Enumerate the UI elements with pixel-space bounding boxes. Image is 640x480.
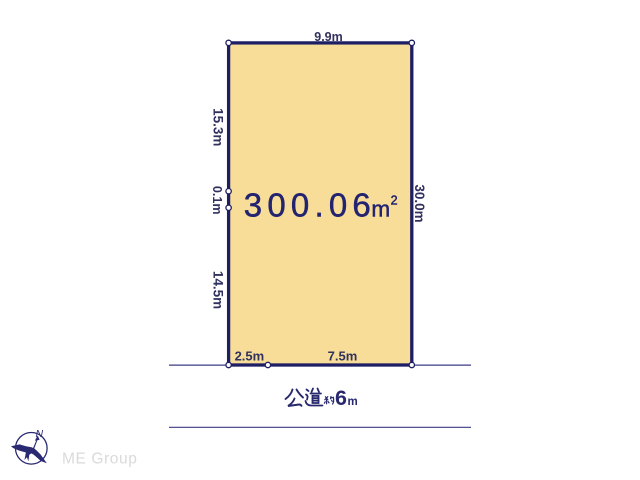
svg-text:6m: 6m xyxy=(335,386,358,410)
svg-text:300.06m2: 300.06m2 xyxy=(244,187,398,224)
svg-text:2.5m: 2.5m xyxy=(235,349,265,364)
svg-text:14.5m: 14.5m xyxy=(210,271,225,309)
svg-text:30.0m: 30.0m xyxy=(412,184,427,222)
svg-text:7.5m: 7.5m xyxy=(328,349,358,364)
svg-text:0.1m: 0.1m xyxy=(210,186,224,215)
svg-text:ME Group: ME Group xyxy=(62,451,137,468)
svg-text:9.9m: 9.9m xyxy=(314,30,343,44)
svg-text:15.3m: 15.3m xyxy=(210,108,225,146)
